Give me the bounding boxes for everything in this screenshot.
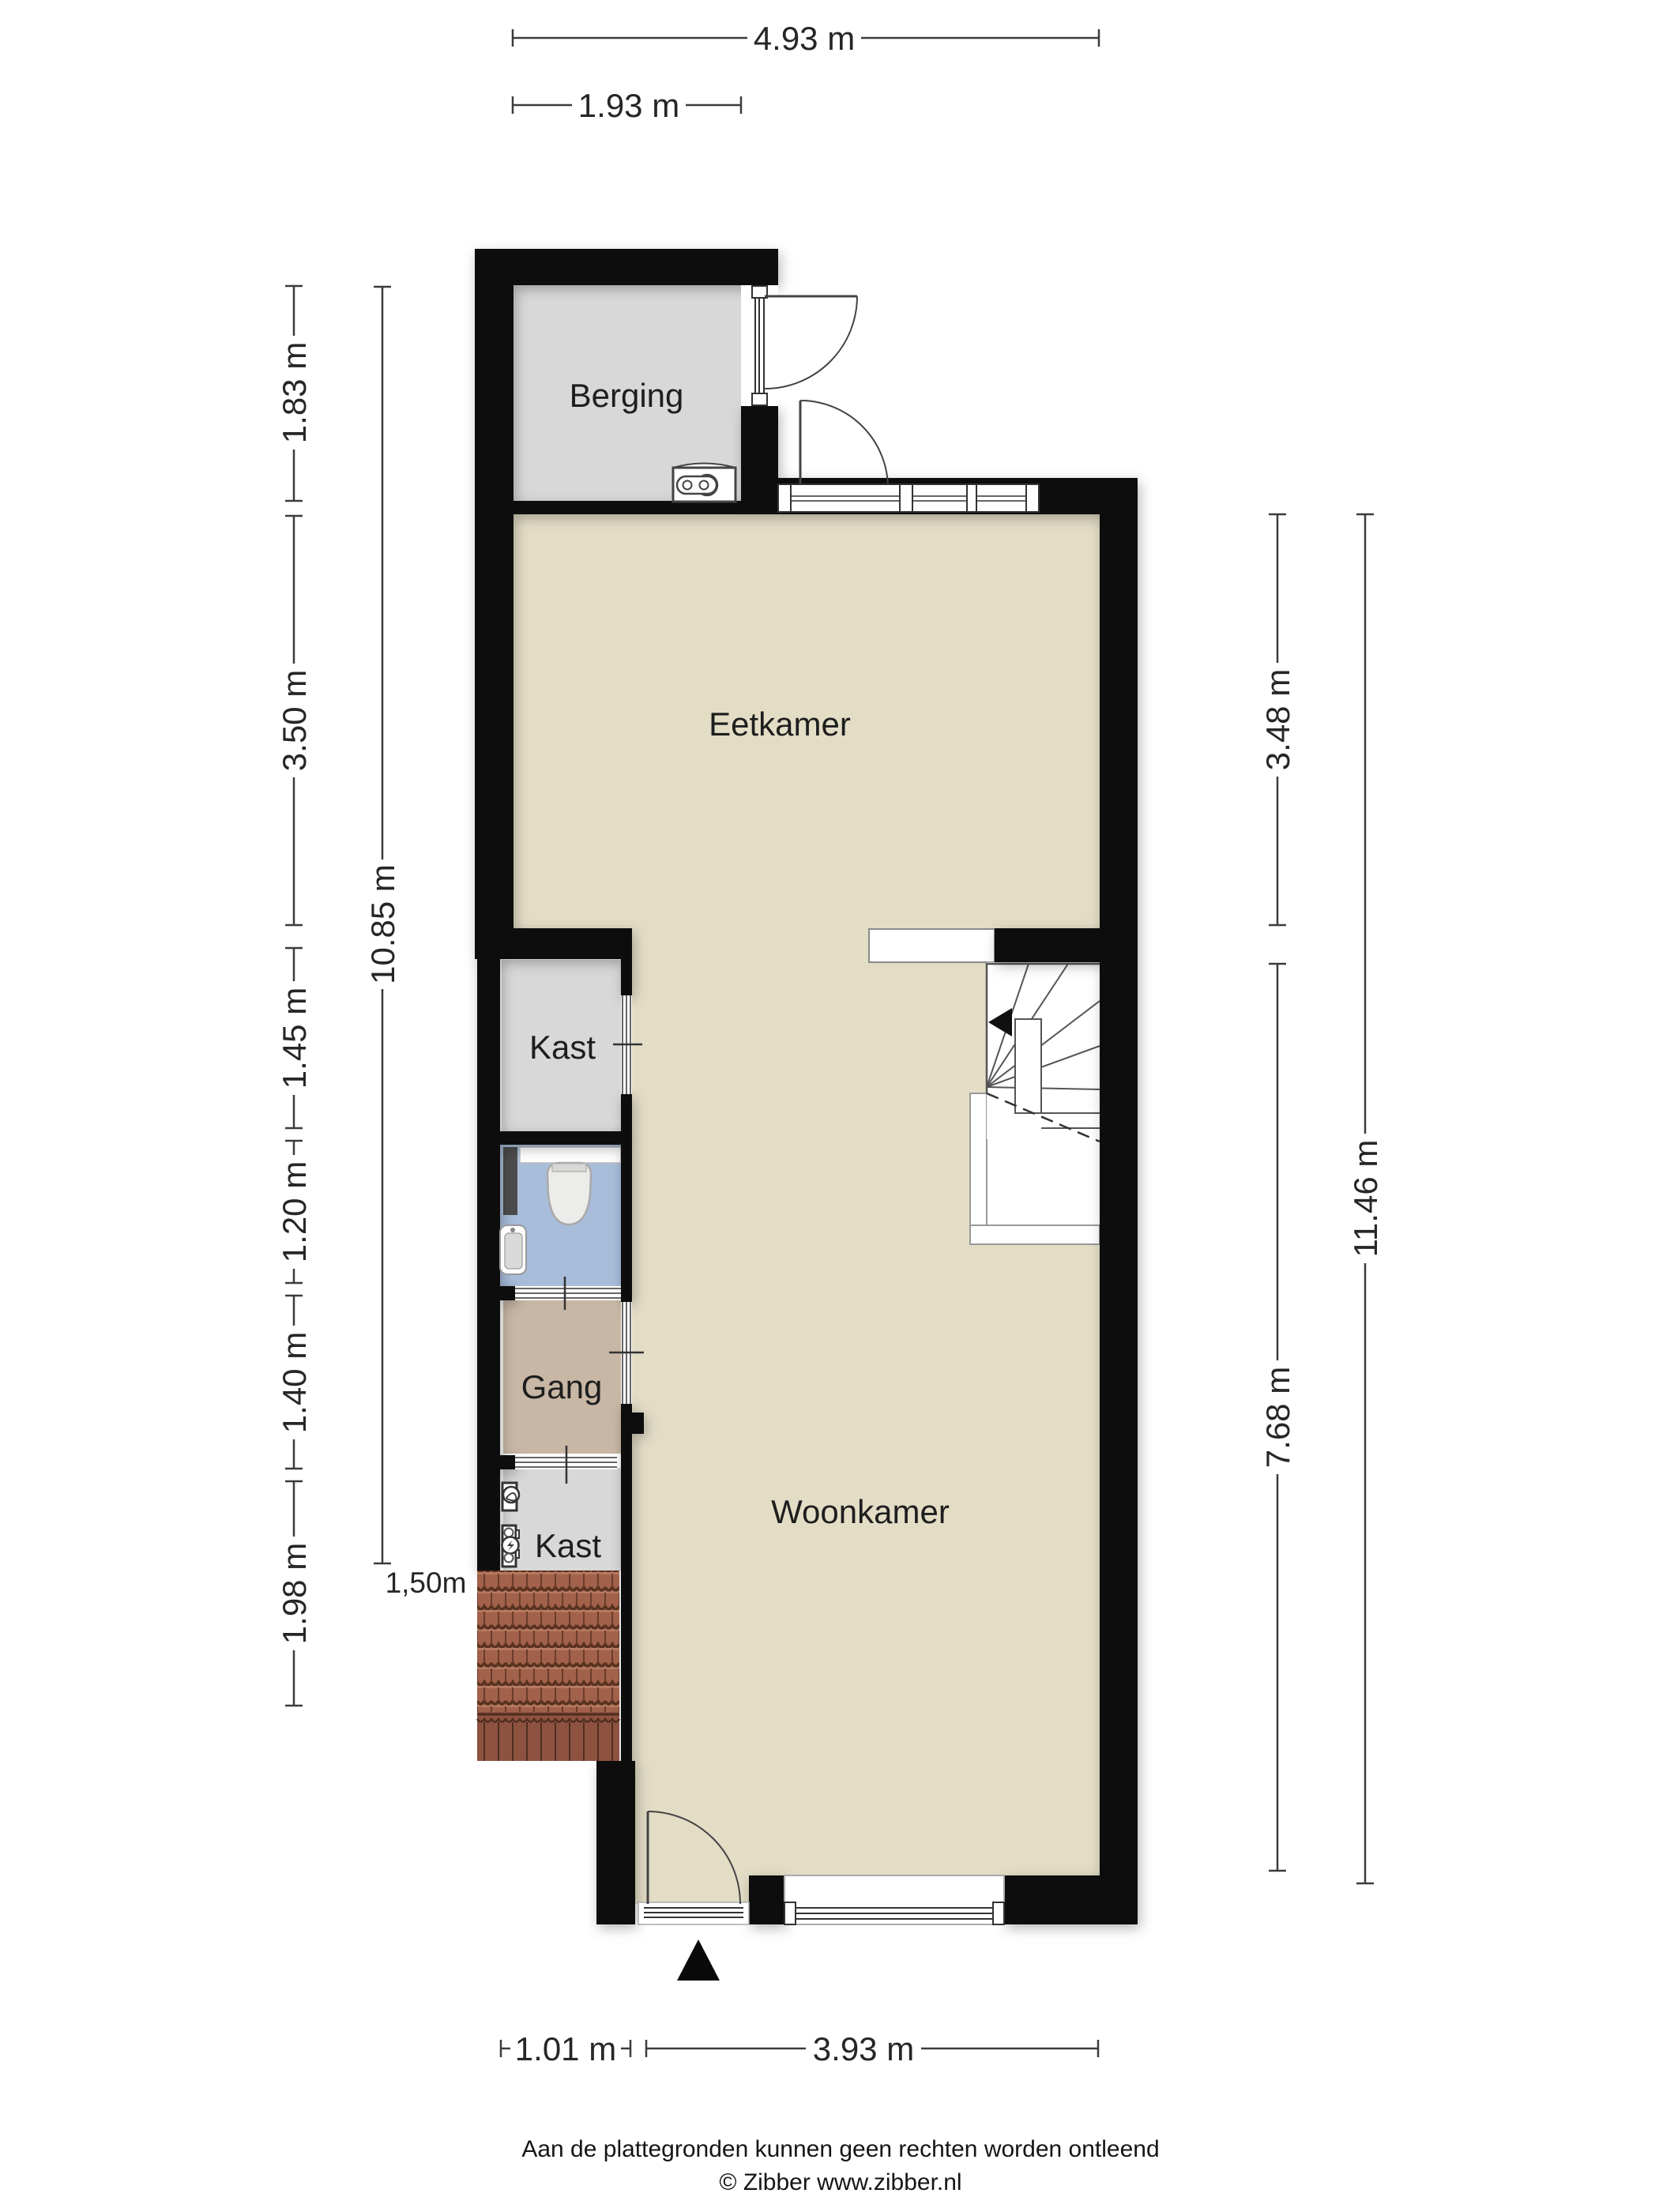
- svg-text:Aan de plattegronden kunnen ge: Aan de plattegronden kunnen geen rechten…: [521, 2136, 1159, 2162]
- svg-text:4.93 m: 4.93 m: [754, 20, 855, 57]
- svg-text:Eetkamer: Eetkamer: [709, 705, 851, 743]
- svg-text:Kast: Kast: [535, 1527, 601, 1564]
- svg-text:1.45 m: 1.45 m: [276, 987, 313, 1089]
- svg-text:1,50m: 1,50m: [386, 1567, 467, 1599]
- svg-text:Gang: Gang: [521, 1368, 603, 1405]
- svg-text:1.40 m: 1.40 m: [276, 1332, 313, 1433]
- svg-text:3.50 m: 3.50 m: [276, 670, 313, 771]
- svg-text:Berging: Berging: [570, 377, 684, 414]
- svg-text:Kast: Kast: [529, 1029, 596, 1066]
- svg-text:3.93 m: 3.93 m: [813, 2030, 914, 2067]
- svg-text:1.98 m: 1.98 m: [276, 1543, 313, 1644]
- svg-text:1.83 m: 1.83 m: [276, 342, 313, 443]
- svg-text:Woonkamer: Woonkamer: [771, 1493, 950, 1530]
- svg-text:10.85 m: 10.85 m: [364, 864, 401, 984]
- svg-text:7.68 m: 7.68 m: [1259, 1367, 1296, 1468]
- svg-text:1.93 m: 1.93 m: [578, 87, 679, 124]
- svg-text:1.01 m: 1.01 m: [515, 2030, 616, 2067]
- svg-text:3.48 m: 3.48 m: [1259, 669, 1296, 770]
- svg-text:1.20 m: 1.20 m: [276, 1161, 313, 1262]
- svg-text:11.46 m: 11.46 m: [1347, 1140, 1384, 1258]
- svg-text:© Zibber www.zibber.nl: © Zibber www.zibber.nl: [719, 2169, 961, 2195]
